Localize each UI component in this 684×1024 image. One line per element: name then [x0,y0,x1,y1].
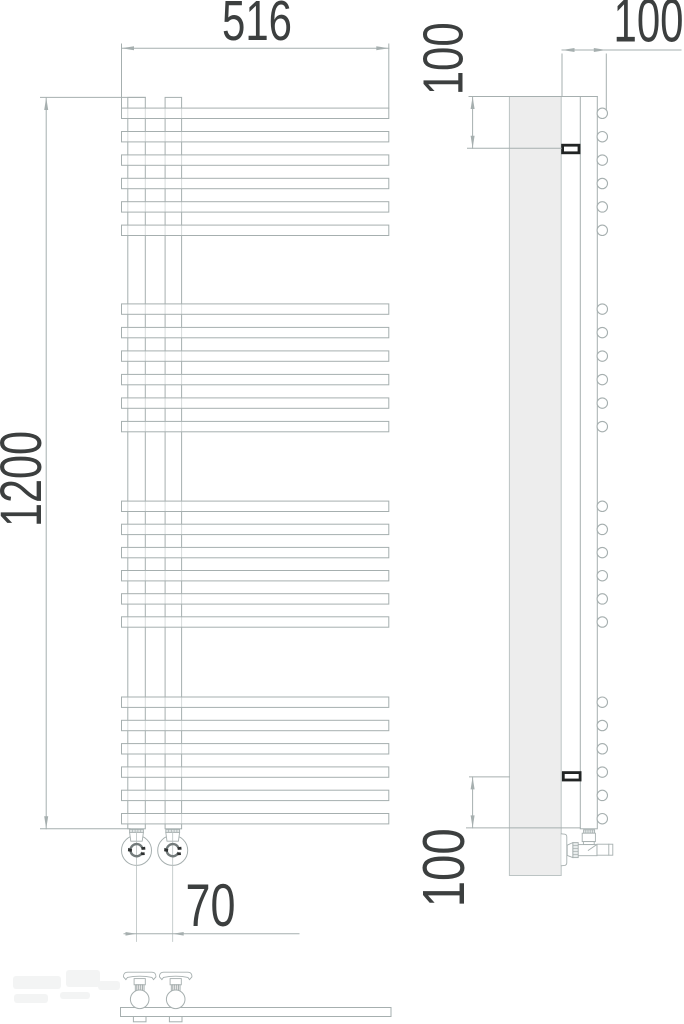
svg-text:516: 516 [222,0,292,53]
svg-text:70: 70 [186,872,236,939]
svg-text:100: 100 [412,22,476,95]
svg-text:100: 100 [411,828,477,907]
svg-text:100: 100 [614,0,684,55]
